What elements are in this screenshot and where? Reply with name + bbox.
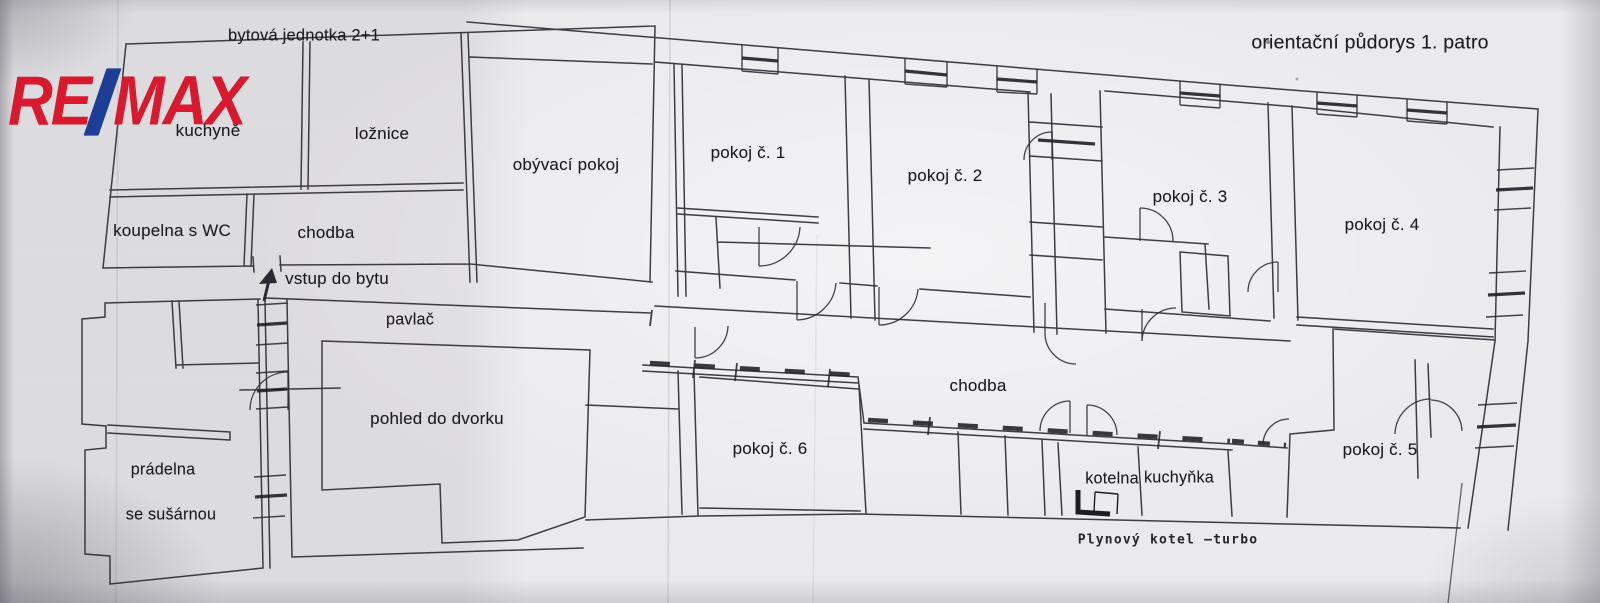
- room-label-3: pokoj č. 3: [1153, 187, 1228, 207]
- gas-boiler-note: Plynový kotel –turbo: [1078, 533, 1259, 548]
- room-label-bathroom: koupelna s WC: [113, 221, 231, 241]
- laundry-label-line2: se sušárnou: [126, 506, 216, 525]
- room-label-kitchen: kuchyně: [176, 121, 241, 141]
- boiler-room-label: kotelna: [1085, 470, 1139, 489]
- entrance-label: vstup do bytu: [285, 269, 389, 289]
- unit-title: bytová jednotka 2+1: [228, 27, 380, 46]
- laundry-label-line1: prádelna: [131, 461, 196, 480]
- scan-crease-lines: [116, 0, 1462, 603]
- room-label-6: pokoj č. 6: [733, 439, 808, 459]
- room-label-hall: chodba: [298, 223, 355, 243]
- room-label-living-room: obývací pokoj: [513, 155, 620, 175]
- remax-logo-re: RE: [8, 67, 90, 136]
- kitchenette-label: kuchyňka: [1144, 469, 1214, 488]
- room-label-1: pokoj č. 1: [711, 143, 786, 163]
- room-label-4: pokoj č. 4: [1345, 215, 1420, 235]
- entrance-arrow-icon: [259, 268, 277, 301]
- gas-boiler-mark: [1078, 490, 1118, 514]
- page-title: orientační půdorys 1. patro: [1251, 32, 1488, 55]
- room-label-bedroom: ložnice: [355, 124, 409, 144]
- gallery-label: pavlač: [386, 311, 434, 330]
- room-label-5: pokoj č. 5: [1343, 440, 1418, 460]
- wall-lines: [82, 22, 1538, 584]
- courtyard-view-label: pohled do dvorku: [370, 409, 504, 429]
- door-swing-arcs: [250, 132, 1462, 444]
- scanned-floor-plan-page: REMAX bytová jednotka 2+1 orientační půd…: [0, 0, 1600, 603]
- room-label-2: pokoj č. 2: [908, 166, 983, 186]
- corridor-label: chodba: [950, 376, 1007, 396]
